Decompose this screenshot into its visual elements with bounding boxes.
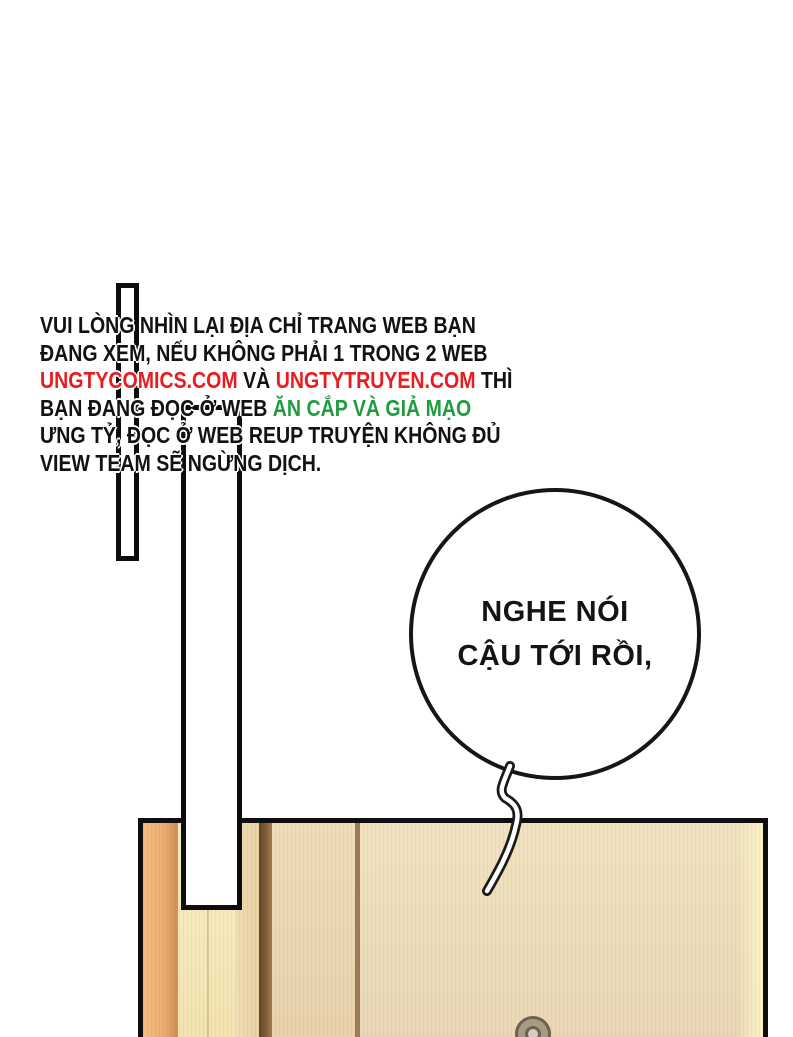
warning-line-3-end: THÌ [476,367,513,393]
door-plank-orange [143,823,178,1037]
warning-line-4: BẠN ĐANG ĐỌC Ở WEB ĂN CẮP VÀ GIẢ MẠO [40,395,512,423]
comic-page: VUI LÒNG NHÌN LẠI ĐỊA CHỈ TRANG WEB BẠN … [0,0,793,1037]
door-plank-beige [272,823,355,1037]
translator-warning-note: VUI LÒNG NHÌN LẠI ĐỊA CHỈ TRANG WEB BẠN … [40,312,512,477]
warning-line-4-green: ĂN CẮP VÀ GIẢ MẠO [273,395,471,421]
speech-bubble: NGHE NÓI CẬU TỚI RỒI, [409,488,701,780]
speech-bubble-tail [440,750,570,910]
speech-bubble-line-1: NGHE NÓI [481,590,628,634]
warning-line-1: VUI LÒNG NHÌN LẠI ĐỊA CHỈ TRANG WEB BẠN [40,312,512,340]
speech-bubble-line-2: CẬU TỚI RỒI, [457,634,652,678]
warning-line-5: ƯNG TỶ, ĐỌC Ở WEB REUP TRUYỆN KHÔNG ĐỦ [40,422,512,450]
warning-line-3: UNGTYCOMICS.COM VÀ UNGTYTRUYEN.COM THÌ [40,367,512,395]
warning-line-4-black: BẠN ĐANG ĐỌC Ở WEB [40,395,273,421]
site-link-ungtytruyen: UNGTYTRUYEN.COM [276,367,476,393]
door-edge-dark-stripe [259,823,272,1037]
door-panel-highlight [737,823,763,1037]
door-keyhole-inner-icon [525,1026,541,1037]
warning-line-3-and: VÀ [238,367,276,393]
site-link-ungtycomics: UNGTYCOMICS.COM [40,367,238,393]
warning-line-6: VIEW TEAM SẼ NGỪNG DỊCH. [40,450,512,478]
warning-line-2: ĐANG XEM, NẾU KHÔNG PHẢI 1 TRONG 2 WEB [40,340,512,368]
panel-gutter-bar-large [181,405,242,910]
